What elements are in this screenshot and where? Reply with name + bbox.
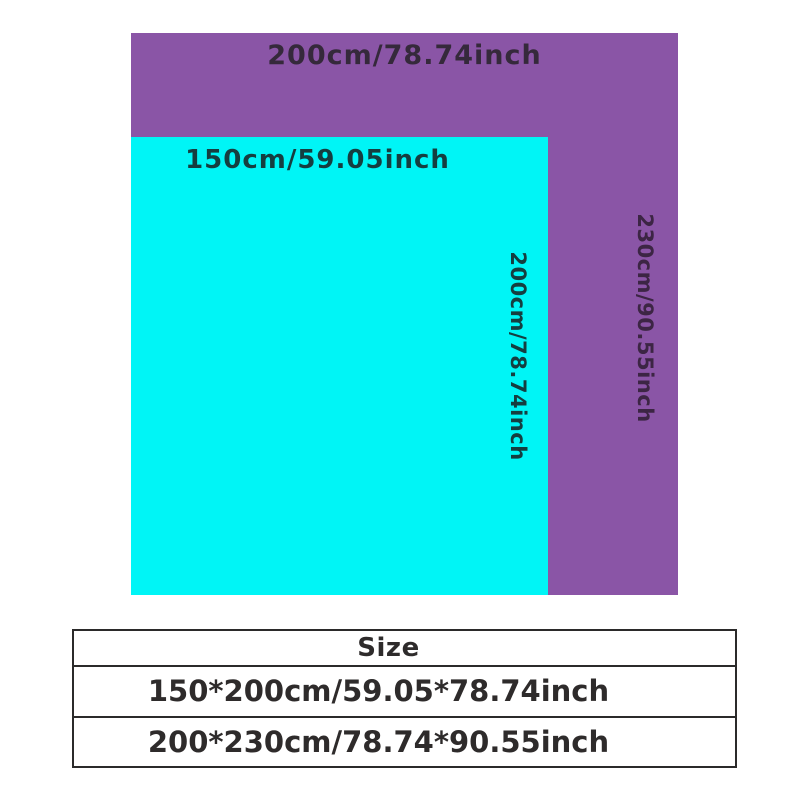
size-table-row-large: 200*230cm/78.74*90.55inch (74, 716, 735, 767)
size-table-row-small: 150*200cm/59.05*78.74inch (74, 667, 735, 716)
size-table: Size 150*200cm/59.05*78.74inch 200*230cm… (72, 629, 737, 768)
large-rect-height-label: 230cm/90.55inch (634, 213, 656, 422)
size-table-header: Size (74, 631, 735, 667)
size-comparison-diagram: 200cm/78.74inch 150cm/59.05inch 200cm/78… (0, 0, 800, 800)
small-rect-height-label: 200cm/78.74inch (507, 251, 529, 460)
small-rect-width-label: 150cm/59.05inch (109, 147, 526, 174)
large-rect-width-label: 200cm/78.74inch (131, 42, 678, 70)
small-size-rectangle (131, 137, 548, 595)
